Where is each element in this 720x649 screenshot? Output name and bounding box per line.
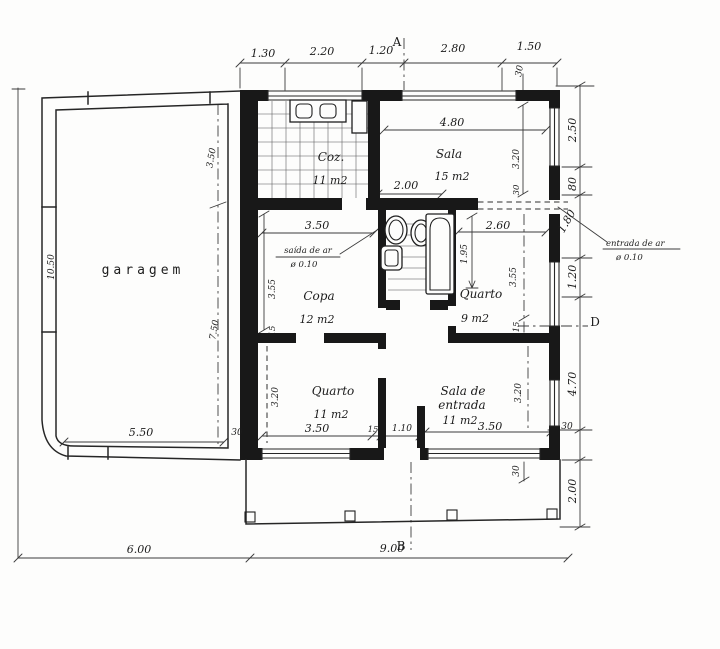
dim-right-2: 80 <box>566 177 579 191</box>
room-label-se-1: Sala de <box>441 384 486 398</box>
dim-sala-height: 3.20 <box>512 149 522 169</box>
room-label-se-2: entrada <box>438 398 485 412</box>
room-label-quarto11: Quarto <box>312 384 355 398</box>
dim-top-3: 1.20 <box>369 44 394 57</box>
dim-top-wall: 30 <box>514 64 526 77</box>
dim-bath-length: 1.95 <box>460 244 470 264</box>
floor-plan-drawing: A B D 1.30 2.20 1.20 2.80 1.50 30 2.50 8… <box>0 0 720 649</box>
dim-right-6: 30 <box>561 422 573 432</box>
room-area-se: 11 m2 <box>443 414 478 427</box>
dim-se-height: 3.20 <box>514 383 524 403</box>
porch-column-3 <box>447 510 457 520</box>
window-right-sala <box>549 108 560 166</box>
porch-column-2 <box>345 511 355 521</box>
dim-garage-bottom: 7.50 <box>208 319 221 341</box>
dim-garage-wall: 30 <box>231 428 243 438</box>
wall-bath-bottom-1 <box>386 300 400 310</box>
dim-bath-width: 2.00 <box>393 179 419 192</box>
dim-hall-width: 2.60 <box>485 219 511 232</box>
kitchen-duct <box>352 101 367 133</box>
wall-mid-a1 <box>258 198 342 210</box>
dim-garage-top: 3.50 <box>205 147 218 169</box>
wall-coz-sala <box>368 101 380 198</box>
wall-right-4 <box>549 326 560 380</box>
wall-mid-b2 <box>324 333 386 343</box>
section-label-d: D <box>590 315 600 329</box>
garage-width-dim <box>60 438 228 446</box>
wall-bottom-2 <box>350 448 384 460</box>
corridor-opening-dashes <box>478 202 568 209</box>
wall-mid-a2 <box>366 198 478 210</box>
left-ext-line <box>12 88 25 558</box>
saida-de-ar-label: saída de ar <box>284 245 333 256</box>
dim-right-5: 4.70 <box>566 372 579 398</box>
wall-top-1 <box>240 90 268 101</box>
wall-se-left <box>417 406 425 448</box>
porch-column-4 <box>547 509 557 519</box>
room-area-quarto11: 11 m2 <box>314 408 349 421</box>
room-area-sala: 15 m2 <box>435 170 470 183</box>
dim-sala-width: 4.80 <box>439 116 465 129</box>
wall-right-2 <box>549 166 560 200</box>
wall-bath-bottom-2 <box>430 300 448 310</box>
dim-garage-width: 5.50 <box>129 426 154 439</box>
dim-quarto11-width: 3.50 <box>305 422 330 435</box>
window-bottom-quarto11 <box>262 448 350 460</box>
wall-bottom-1 <box>240 448 262 460</box>
wall-bath-right-stub <box>448 326 456 333</box>
dim-copa-wall: 15 <box>268 326 278 337</box>
dim-quarto11-wall: 15 <box>368 425 379 435</box>
dim-right-3: 1.80 <box>555 207 579 235</box>
dim-bottom-2: 9.00 <box>380 542 405 555</box>
room-area-coz: 11 m2 <box>313 174 348 187</box>
wall-q11-right <box>378 378 386 448</box>
wall-left <box>240 101 258 448</box>
room-area-copa: 12 m2 <box>300 313 335 326</box>
room-label-quarto9: Quarto <box>460 287 503 301</box>
dim-top-1: 1.30 <box>251 47 276 60</box>
wall-bottom-4 <box>540 448 560 460</box>
window-top-sala <box>402 90 516 101</box>
window-right-quarto9 <box>549 262 560 326</box>
room-area-quarto9: 9 m2 <box>461 312 489 325</box>
window-bottom-se <box>428 448 540 460</box>
wall-top-2 <box>362 90 402 101</box>
wall-right-1 <box>549 90 560 108</box>
room-label-coz: Coz. <box>318 150 345 164</box>
sala-width-dim <box>380 126 550 134</box>
dim-garage-height: 10.50 <box>47 254 57 280</box>
dim-quarto9-height: 3.55 <box>509 267 519 287</box>
copa-height-dim <box>259 211 269 333</box>
dim-top-5: 1.50 <box>517 40 542 53</box>
room-label-garagem: garagem <box>102 263 185 278</box>
window-top-coz <box>268 90 362 101</box>
dim-sala-wall: 30 <box>512 184 522 195</box>
dim-copa-width: 3.50 <box>305 219 330 232</box>
dim-top-4: 2.80 <box>440 42 466 55</box>
room-label-copa: Copa <box>303 289 334 303</box>
wall-q11-stub <box>378 343 386 349</box>
dim-quarto9-wall: 15 <box>512 322 522 333</box>
window-right-se <box>549 380 560 426</box>
wall-mid-b3 <box>448 333 550 343</box>
dim-copa-height: 3.55 <box>268 279 278 299</box>
entrada-de-ar-label: entrada de ar <box>606 239 666 249</box>
entrada-de-ar-dia: ø 0.10 <box>615 253 643 263</box>
wall-bottom-3 <box>420 448 428 460</box>
saida-de-ar-dia: ø 0.10 <box>290 260 318 270</box>
dim-right-1: 2.50 <box>566 118 579 144</box>
dim-right-4: 1.20 <box>566 265 579 290</box>
dim-top-2: 2.20 <box>309 45 335 58</box>
dim-right-7: 2.00 <box>566 479 579 505</box>
room-label-sala: Sala <box>436 147 462 161</box>
floor-plan-page: A B D 1.30 2.20 1.20 2.80 1.50 30 2.50 8… <box>0 0 720 649</box>
dim-bottom-1: 6.00 <box>127 543 152 556</box>
dim-vestibule-width: 1.10 <box>392 424 412 434</box>
dim-quarto11-height: 3.20 <box>271 387 281 407</box>
dim-porch-wall: 30 <box>512 465 522 477</box>
kitchen-counter <box>290 100 346 122</box>
dim-se-width: 3.50 <box>478 420 503 433</box>
